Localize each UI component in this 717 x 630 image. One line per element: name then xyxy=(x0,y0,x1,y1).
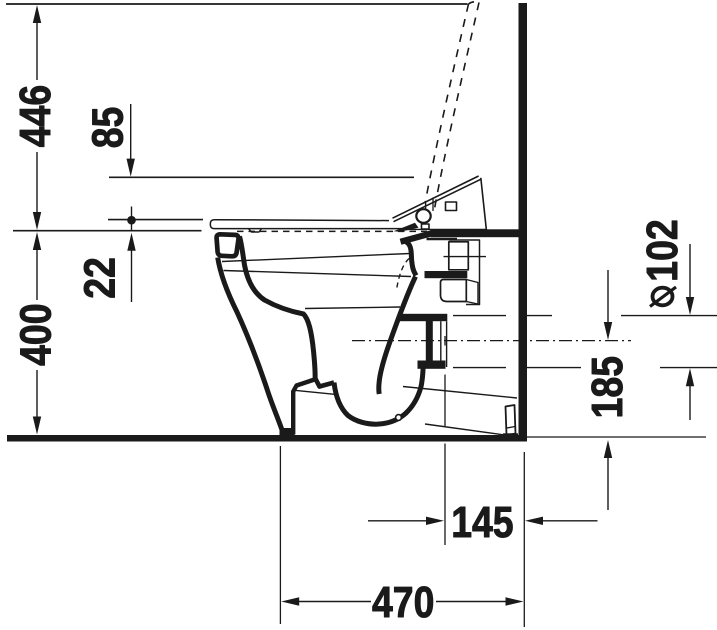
svg-text:446: 446 xyxy=(10,85,60,147)
svg-text:185: 185 xyxy=(582,356,632,418)
svg-text:85: 85 xyxy=(83,107,133,149)
svg-text:145: 145 xyxy=(451,497,513,547)
svg-text:22: 22 xyxy=(75,257,125,299)
svg-text:400: 400 xyxy=(11,304,61,366)
svg-text:470: 470 xyxy=(372,577,434,627)
svg-text:102: 102 xyxy=(637,219,687,281)
